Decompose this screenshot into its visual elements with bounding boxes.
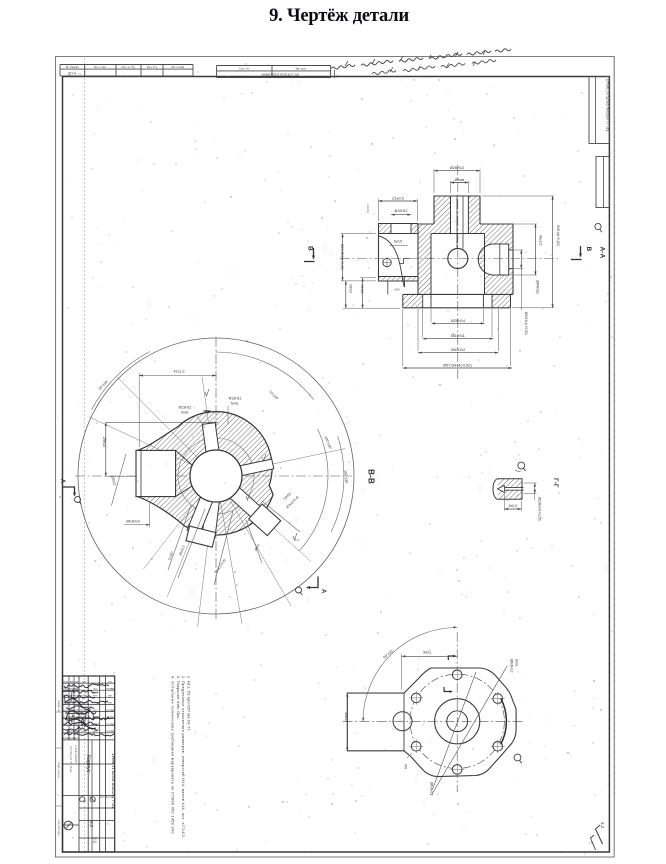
svg-text:2×45°: 2×45°	[168, 550, 175, 561]
svg-text:21±0,5: 21±0,5	[392, 196, 404, 200]
svg-text:160°±30': 160°±30'	[343, 470, 348, 484]
svg-text:ллт: ллт	[93, 694, 99, 698]
svg-text:50Н14(+0,62): 50Н14(+0,62)	[556, 225, 560, 246]
svg-text:R9: R9	[404, 765, 408, 769]
svg-text:ллтв: ллтв	[73, 736, 80, 740]
svg-text:1Н96.П.5203.5031А77-31: 1Н96.П.5203.5031А77-31	[110, 753, 116, 809]
svg-text:ЗН5: ЗН5	[394, 288, 400, 292]
svg-text:Ø6,6Н12: Ø6,6Н12	[430, 782, 434, 796]
svg-text:60°±30': 60°±30'	[382, 649, 394, 660]
svg-text:30±1: 30±1	[423, 651, 431, 655]
svg-text:А: А	[59, 479, 65, 484]
svg-text:В-В: В-В	[367, 469, 377, 484]
svg-text:36±0,5: 36±0,5	[539, 235, 543, 245]
svg-text:3. Покрытие Хим. Окс.: 3. Покрытие Хим. Окс.	[176, 676, 180, 720]
svg-text:Подп. и дата: Подп. и дата	[57, 762, 61, 778]
svg-text:25±0,2: 25±0,2	[178, 545, 186, 556]
svg-text:ллт: ллт	[108, 694, 114, 698]
svg-text:Ø42Н12: Ø42Н12	[451, 348, 465, 352]
svg-text:1Н96П5203.5031А77-3Д: 1Н96П5203.5031А77-3Д	[261, 73, 300, 77]
svg-text:Ø6мм: Ø6мм	[455, 178, 465, 182]
svg-text:30h14: 30h14	[349, 284, 353, 293]
svg-text:5±0,5: 5±0,5	[509, 504, 518, 508]
svg-text:Инв. № подл.: Инв. № подл.	[57, 820, 61, 836]
svg-text:Ø28Н14: Ø28Н14	[451, 319, 465, 323]
svg-text:42±1,3: 42±1,3	[174, 370, 185, 374]
svg-text:лл: лл	[93, 687, 97, 691]
svg-text:Г-Г: Г-Г	[552, 478, 559, 488]
svg-text:30h14: 30h14	[344, 712, 348, 722]
svg-text:ОН-П2.4-93. П6.сб·веч: ОН-П2.4-93. П6.сб·веч	[69, 746, 73, 774]
svg-text:29h14: 29h14	[102, 437, 106, 447]
svg-text:4-1ПЦ.300-В: 4-1ПЦ.300-В	[74, 745, 78, 763]
svg-text:Ø6,6Н14: Ø6,6Н14	[126, 520, 140, 524]
svg-text:ллт: ллт	[63, 679, 69, 683]
svg-text:лл: лл	[82, 679, 86, 683]
svg-text:Лист и Лам.: Лист и Лам.	[171, 66, 185, 69]
svg-text:Ø6,6: Ø6,6	[254, 543, 261, 551]
svg-text:0,2: 0,2	[89, 821, 94, 828]
svg-text:(Ø44Н12): (Ø44Н12)	[536, 280, 540, 294]
svg-text:2:1: 2:1	[92, 837, 97, 844]
svg-text:А-А: А-А	[599, 247, 606, 259]
svg-text:Раз. чл. П듯: Раз. чл. П듯	[122, 65, 136, 69]
svg-text:6,3: 6,3	[295, 538, 299, 542]
svg-text:Ø6,6Н12: Ø6,6Н12	[510, 659, 514, 673]
svg-text:2. Предельные отклонения разме: 2. Предельные отклонения размеров: отвер…	[181, 676, 185, 839]
svg-text:Вс. Разраб: Вс. Разраб	[66, 66, 79, 69]
svg-text:25°±30': 25°±30'	[98, 379, 109, 390]
svg-text:Корпус: Корпус	[85, 755, 91, 773]
svg-text:Зотв.: Зотв.	[181, 411, 189, 415]
svg-text:(: (	[589, 842, 593, 844]
svg-text:Ø13Н11: Ø13Н11	[179, 406, 192, 410]
svg-text:Лит: Лит	[83, 800, 88, 803]
svg-text:В: В	[585, 247, 592, 252]
svg-text:Ø13,5Н14(+0,43): Ø13,5Н14(+0,43)	[340, 244, 344, 270]
svg-text:ллтва: ллтва	[106, 687, 114, 691]
svg-text:(-0,43): (-0,43)	[366, 204, 370, 213]
svg-text:4. Остальные технические требо: 4. Остальные технические требования марк…	[171, 676, 175, 835]
svg-text:Реч. и зам.: Реч. и зам.	[94, 66, 107, 69]
svg-text:Справ. №: Справ. №	[57, 700, 61, 712]
svg-text:Ø57,5Н14(-0,62): Ø57,5Н14(-0,62)	[443, 363, 472, 367]
svg-text:ДП-А: ДП-А	[68, 72, 77, 76]
svg-text:г.: г.	[71, 837, 75, 839]
svg-text:Ø13Н11: Ø13Н11	[229, 397, 242, 401]
svg-text:ллт: ллт	[81, 729, 87, 733]
svg-text:ллтва: ллтва	[106, 708, 114, 712]
svg-text:5±0,5: 5±0,5	[394, 240, 403, 244]
svg-text:Ø37Н11: Ø37Н11	[451, 334, 465, 338]
svg-text:Ø2,8Н14(+0,25): Ø2,8Н14(+0,25)	[537, 497, 541, 521]
svg-text:5отв.: 5отв.	[231, 402, 239, 406]
svg-text:лл: лл	[108, 679, 112, 683]
svg-text:1. Н12; 53-пр0-057 В2-09-77.: 1. Н12; 53-пр0-057 В2-09-77.	[187, 676, 191, 732]
svg-text:10h14: 10h14	[360, 284, 364, 293]
svg-text:25h12: 25h12	[110, 475, 117, 486]
svg-text:ллт: ллт	[108, 701, 114, 705]
svg-text:ллтва: ллтва	[106, 722, 114, 726]
svg-text:70°±30': 70°±30'	[268, 390, 280, 401]
svg-text:100°±30': 100°±30'	[324, 436, 333, 451]
svg-text:В: В	[307, 246, 314, 251]
svg-text:Ø10Н12: Ø10Н12	[394, 209, 407, 213]
svg-text:Ø26Н12: Ø26Н12	[450, 165, 465, 170]
svg-text:А: А	[320, 589, 326, 594]
svg-text:лл: лл	[70, 679, 74, 683]
svg-text:6отв.: 6отв.	[515, 659, 519, 667]
svg-text:15Н11: 15Н11	[283, 491, 293, 501]
svg-text:3,2: 3,2	[600, 822, 605, 829]
svg-text:Зак. вып.: Зак. вып.	[296, 66, 307, 70]
svg-text:Ø21Н14(+0,52): Ø21Н14(+0,52)	[524, 312, 528, 335]
svg-text:1Н96.П.5203.5031А77-31: 1Н96.П.5203.5031А77-31	[606, 79, 611, 133]
svg-text:Сост. №: Сост. №	[239, 66, 249, 70]
svg-text:): )	[597, 851, 601, 852]
svg-text:1: 1	[336, 74, 338, 78]
svg-text:Листов 1: Листов 1	[106, 796, 116, 799]
svg-text:лл: лл	[75, 679, 79, 683]
svg-text:Рнн. Учл: Рнн. Учл	[147, 66, 158, 69]
